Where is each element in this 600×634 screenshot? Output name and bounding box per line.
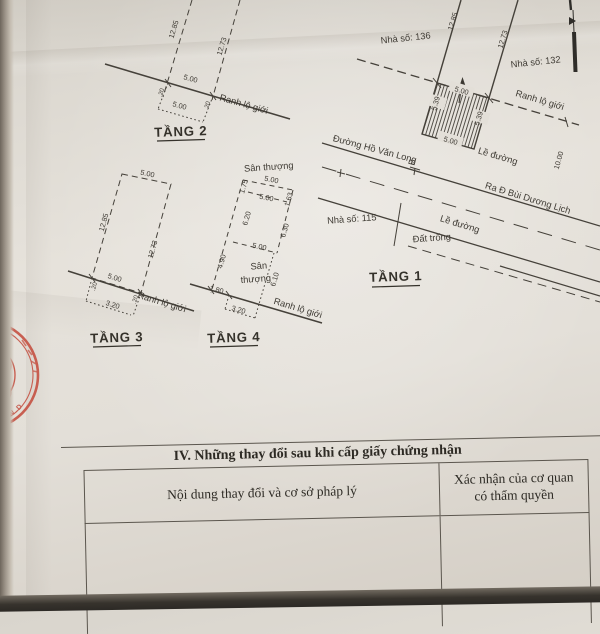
tang3-boundary-label: Ranh lộ giới [136,290,187,314]
tang4-dim-inner: 5.00 [259,192,275,204]
tang1-dim-road: 10.00 [552,150,566,170]
table-empty-row [85,513,592,634]
plan-tang-3 [68,174,194,316]
col-header-authority-line1: Xác nhận của cơ quan [454,469,574,488]
tang4-dim-right-upper: 6.30 [278,222,291,238]
tang4-dim-left-lower: 4.90 [215,253,228,269]
empty-cell-content [86,516,443,634]
tang1-street-direction: Ra Đ Bùi Dương Lịch [484,180,572,216]
page-left-edge [0,0,14,600]
tang2-dim-side-left: 12.85 [167,19,181,39]
tang1-street-name: Đường Hồ Văn Long [332,133,418,165]
tang2-boundary-label: Ranh lộ giới [218,92,269,115]
tang4-dim-tr: 1.63 [282,191,295,207]
tang2-label: TẦNG 2 [154,123,208,140]
tang4-dim-bottom-left: 1.80 [209,283,225,295]
col-header-content: Nội dung thay đổi và cơ sở pháp lý [85,463,441,523]
tang4-terrace-mid-1: Sân [250,260,267,271]
tang2-dim-side-right: 12.73 [215,36,229,56]
tang3-label: TẦNG 3 [90,329,144,346]
col-header-authority: Xác nhận của cơ quan có thẩm quyền [439,460,588,515]
tang4-dim-tl: 1.75 [237,178,250,194]
tang1-house-lower: Nhà số: 115 [327,212,377,225]
plan-tang-4 [190,180,322,323]
tang4-dim-mid: 5.00 [252,241,268,253]
tang1-dim-side-right: 12.73 [496,29,510,49]
tang1-label: TẦNG 1 [369,268,423,285]
tang3-dim-side-right: 12.73 [146,239,160,259]
tang4-dim-sliver: 3.20 [231,303,247,315]
col-header-authority-line2: có thẩm quyền [474,487,554,506]
tang2-dim-width-lower: 5.00 [172,99,188,111]
empty-cell-authority [441,513,591,626]
tang1-dim-side-left: 12.85 [446,11,460,31]
tang4-dim-top: 5.00 [264,174,280,186]
scanned-certificate-page: { "plans": { "tang1": { "label": "TẦNG 1… [0,0,600,600]
tang3-dim-sliver: 3.20 [105,298,121,311]
tang2-notch-right: .20 [203,100,212,111]
tang1-house-right: Nhà số: 132 [510,54,561,69]
tang4-label: TẦNG 4 [207,329,261,346]
tang2-notch-left: .20 [157,87,166,98]
north-arrow-icon [569,0,578,72]
tang2-dim-width: 5.00 [183,72,199,84]
tang4-terrace-mid-2: thượng [240,273,271,285]
tang1-house-left: Nhà số: 136 [380,30,431,45]
tang1-vacant-lot: Đất trống [412,232,451,245]
tang1-sidewalk-upper: Lề đường [477,146,519,167]
tang3-dim-bottom: 5.00 [107,271,123,284]
tang3-notch-left: .20 [90,281,99,292]
tang4-dim-left-upper: 6.20 [240,210,253,226]
tang4-terrace-top: Sân thượng [244,160,294,173]
